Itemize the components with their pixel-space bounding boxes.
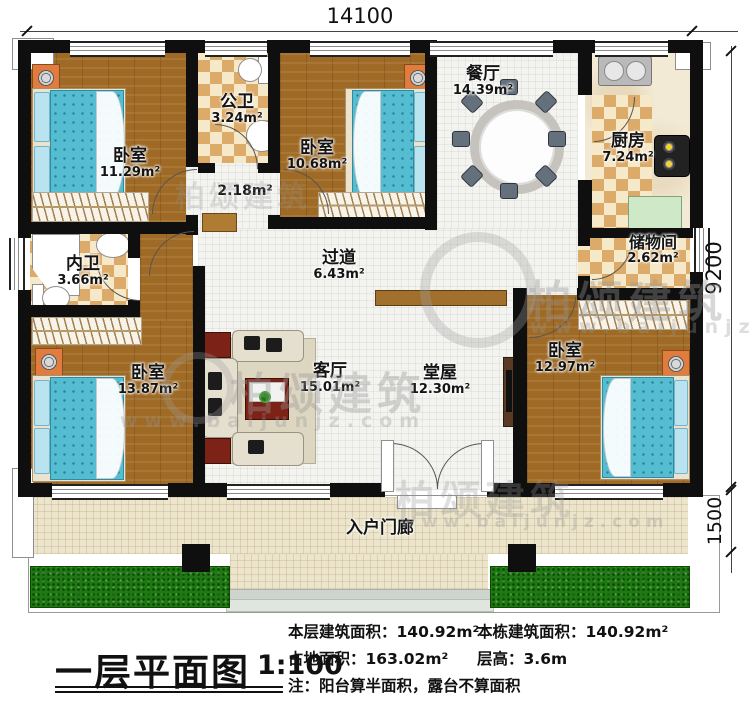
room-area: 12.97m²	[525, 361, 605, 376]
wall	[425, 40, 437, 230]
room-area: 11.29m²	[90, 166, 170, 181]
porch-pillar-left	[182, 544, 210, 572]
room-label-hallway: 2.18m²	[205, 184, 285, 200]
wall	[128, 234, 140, 258]
bed-pillow	[674, 428, 688, 474]
wall	[18, 290, 31, 483]
room-name: 卧室	[90, 147, 170, 166]
wall	[128, 300, 140, 317]
window	[310, 41, 410, 57]
bed-pillow	[34, 146, 50, 196]
info-label: 本栋建筑面积：	[477, 623, 586, 641]
bed-blanket	[96, 91, 125, 199]
room-name: 公卫	[197, 93, 277, 112]
wall	[578, 40, 592, 95]
room-label-dining-room: 餐厅 14.39m²	[441, 65, 525, 99]
room-area: 2.18m²	[205, 184, 285, 200]
title-underline	[55, 686, 283, 688]
info-land-area: 占地面积：163.02m²	[288, 647, 448, 669]
room-name: 客厅	[290, 362, 370, 381]
dimension-height: 9200	[702, 238, 726, 298]
sofa-cushion	[248, 440, 264, 454]
info-label: 本层建筑面积：	[288, 623, 397, 641]
wall	[18, 483, 52, 497]
sofa-cushion	[244, 336, 260, 350]
wall	[330, 483, 385, 497]
dining-chair	[452, 131, 470, 147]
room-name: 过道	[298, 249, 380, 268]
room-label-bedroom-top-middle: 卧室 10.68m²	[277, 139, 357, 173]
info-note: 注：阳台算半面积，露台不算面积	[288, 674, 521, 696]
dimension-width: 14100	[320, 4, 400, 28]
sofa-cushion	[266, 338, 282, 352]
kitchen-sink-basin	[626, 61, 646, 81]
window	[52, 484, 168, 500]
wardrobe	[32, 317, 142, 345]
room-area: 6.43m²	[298, 268, 380, 283]
window	[9, 238, 25, 290]
dimension-line-top	[20, 31, 738, 32]
room-area: 14.39m²	[441, 84, 525, 99]
wall	[268, 217, 437, 229]
room-label-private-bathroom: 内卫 3.66m²	[43, 255, 123, 289]
bed-pillow	[34, 92, 50, 142]
info-floor-area: 本层建筑面积：140.92m²	[288, 620, 479, 642]
side-table	[203, 332, 231, 358]
room-area: 3.24m²	[197, 112, 277, 127]
side-table	[203, 438, 231, 464]
wardrobe	[318, 192, 432, 219]
wardrobe	[32, 192, 149, 222]
porch-pillar-right	[508, 544, 536, 572]
room-name: 储物间	[613, 234, 693, 252]
title-underline-2	[55, 691, 283, 693]
bed-pillow	[34, 380, 50, 426]
wall	[690, 272, 703, 483]
dining-chair	[548, 131, 566, 147]
info-value: 163.02m²	[366, 650, 449, 668]
room-name: 内卫	[43, 255, 123, 274]
wardrobe	[578, 300, 688, 330]
room-area: 10.68m²	[277, 158, 357, 173]
room-name: 入户门廊	[322, 519, 438, 538]
wall	[18, 222, 198, 234]
window	[205, 41, 267, 57]
room-label-storage: 储物间 2.62m²	[613, 234, 693, 266]
console-table	[375, 290, 507, 306]
room-label-entrance-porch: 入户门廊	[322, 519, 438, 538]
room-area: 2.62m²	[613, 252, 693, 267]
wall	[578, 180, 592, 235]
porch-center-bay	[230, 554, 488, 589]
room-name: 堂屋	[400, 364, 480, 383]
nightstand	[35, 348, 63, 376]
sofa-cushion	[208, 372, 222, 390]
info-building-area: 本栋建筑面积：140.92m²	[477, 620, 668, 642]
entrance-door-post-right	[481, 440, 494, 492]
room-name: 餐厅	[441, 65, 525, 84]
wall	[663, 483, 703, 497]
info-value: 140.92m²	[397, 623, 480, 641]
window	[227, 484, 330, 500]
wall	[18, 40, 31, 238]
bed-blanket	[353, 91, 381, 199]
wall	[165, 40, 205, 53]
dimension-porch-depth: 1500	[704, 494, 726, 548]
info-floor-height: 层高：3.6m	[477, 647, 567, 669]
room-name: 卧室	[525, 342, 605, 361]
wall	[578, 276, 590, 288]
nightstand	[662, 350, 690, 378]
room-label-main-hall: 堂屋 12.30m²	[400, 364, 480, 398]
room-label-bedroom-top-left: 卧室 11.29m²	[90, 147, 170, 181]
room-label-public-bathroom: 公卫 3.24m²	[197, 93, 277, 127]
room-area: 15.01m²	[290, 381, 370, 396]
room-label-kitchen: 厨房 7.24m²	[587, 132, 669, 166]
bed-blanket	[603, 378, 631, 477]
room-area: 13.87m²	[108, 383, 188, 398]
wall	[577, 288, 693, 300]
grass-bed-left	[30, 566, 230, 608]
wall	[198, 163, 215, 173]
info-label: 层高：	[477, 650, 524, 668]
room-name: 卧室	[277, 139, 357, 158]
entrance-door-post-left	[381, 440, 394, 492]
wall	[690, 40, 703, 228]
wall	[578, 238, 590, 246]
kitchen-cabinet	[628, 196, 682, 232]
hall-side-table	[202, 213, 237, 232]
dimension-line-right	[731, 46, 732, 490]
room-area: 12.30m²	[400, 383, 480, 398]
tv	[506, 370, 512, 412]
window	[430, 41, 553, 57]
floor-plan-canvas: 卧室 11.29m² 公卫 3.24m² 2.18m² 卧室 10.68m² 餐…	[0, 0, 750, 703]
bed-pillow	[34, 428, 50, 474]
room-name: 卧室	[108, 364, 188, 383]
sofa-cushion	[208, 398, 222, 416]
info-label: 占地面积：	[288, 650, 366, 668]
room-label-corridor: 过道 6.43m²	[298, 249, 380, 283]
entrance-threshold	[397, 495, 457, 509]
info-value: 140.92m²	[586, 623, 669, 641]
dimension-line-porch	[731, 487, 732, 573]
room-label-living-room: 客厅 15.01m²	[290, 362, 370, 396]
wall	[513, 288, 527, 490]
room-label-bedroom-bottom-left: 卧室 13.87m²	[108, 364, 188, 398]
dining-chair	[500, 183, 518, 199]
window	[70, 41, 165, 57]
porch-step-2	[226, 599, 494, 612]
kitchen-sink-basin	[604, 61, 624, 81]
room-label-bedroom-bottom-right: 卧室 12.97m²	[525, 342, 605, 376]
grass-bed-right	[490, 566, 690, 608]
room-area: 7.24m²	[587, 151, 669, 166]
toilet-bowl	[238, 58, 262, 82]
wall	[193, 266, 205, 490]
window	[595, 41, 668, 57]
room-name: 厨房	[587, 132, 669, 151]
bed-pillow	[674, 380, 688, 426]
wall	[18, 305, 140, 317]
room-area: 3.66m²	[43, 274, 123, 289]
window	[555, 484, 663, 500]
info-value: 3.6m	[524, 650, 568, 668]
sofa-bottom	[232, 432, 304, 466]
plant	[258, 390, 272, 404]
